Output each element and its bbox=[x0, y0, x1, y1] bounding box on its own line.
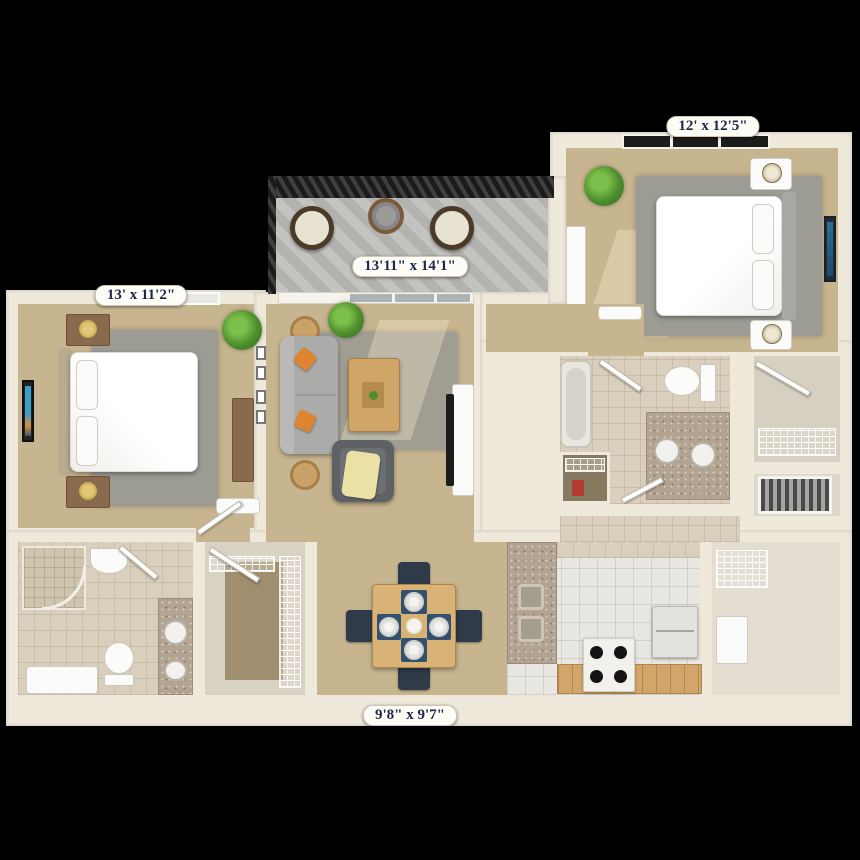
floor-plan-canvas: 12' x 12'5" 13' x 11'2" 13'11" x 14'1" 9… bbox=[0, 0, 860, 860]
bedroom2-dimension-label: 12' x 12'5" bbox=[666, 116, 759, 137]
stove-burner-1 bbox=[590, 646, 603, 659]
bedroom2-wall-art-canvas bbox=[827, 222, 833, 276]
living-dimension-label: 13'11" x 14'1" bbox=[352, 256, 468, 277]
balcony-chair-right bbox=[430, 206, 474, 250]
bedroom2-lamp-2 bbox=[762, 324, 782, 344]
balcony-railing-left bbox=[268, 176, 276, 294]
bathroom2-niche-shelf bbox=[565, 458, 605, 472]
dining-plate-bottom bbox=[404, 640, 424, 660]
bathroom2-niche-red-item bbox=[572, 480, 584, 496]
bathroom2-sink bbox=[654, 438, 680, 464]
balcony-table bbox=[368, 198, 404, 234]
bedroom2-plant bbox=[584, 166, 624, 206]
stove-burner-2 bbox=[614, 646, 627, 659]
bedroom2-lamp bbox=[762, 163, 782, 183]
dining-centerpiece bbox=[406, 618, 422, 634]
living-throw-blanket bbox=[341, 450, 381, 500]
dining-plate-right bbox=[429, 617, 449, 637]
bedroom2-window-mullion bbox=[670, 136, 673, 147]
bathroom1-sink bbox=[163, 620, 188, 645]
sliding-door-mullion-2 bbox=[434, 294, 437, 302]
louvered-door bbox=[758, 476, 832, 514]
living-side-table-2 bbox=[290, 460, 320, 490]
kitchen-sink-2 bbox=[518, 616, 544, 642]
hall-cabinet bbox=[598, 306, 642, 320]
living-wall-frame-3 bbox=[256, 390, 266, 404]
stove-burner-4 bbox=[614, 670, 627, 683]
living-wall-frame bbox=[256, 346, 266, 360]
kitchen-backsplash bbox=[557, 542, 700, 558]
tv-screen bbox=[446, 394, 454, 486]
bedroom1-desk bbox=[232, 398, 254, 482]
living-wall-frame-4 bbox=[256, 410, 266, 424]
bathroom2-sink-2 bbox=[690, 442, 716, 468]
balcony-chair-left bbox=[290, 206, 334, 250]
kitchen-fridge bbox=[652, 606, 698, 658]
pantry-shelf bbox=[716, 550, 768, 588]
closet1-shelving-side bbox=[279, 556, 301, 688]
kitchen-sink bbox=[518, 584, 544, 610]
bathroom1-bench bbox=[26, 666, 98, 694]
living-wall-frame-2 bbox=[256, 366, 266, 380]
hallway2-floor bbox=[560, 516, 740, 542]
bedroom1-pillow-2 bbox=[76, 416, 98, 466]
bathroom2-toilet-tank bbox=[700, 364, 716, 402]
bathroom1-sink-2 bbox=[164, 660, 187, 681]
bathroom1-toilet-tank bbox=[104, 674, 134, 686]
stove-burner-3 bbox=[590, 670, 603, 683]
living-sofa-seam bbox=[296, 394, 336, 396]
bedroom1-dimension-label: 13' x 11'2" bbox=[95, 285, 187, 306]
bedroom2-dresser bbox=[566, 226, 586, 310]
bedroom2-pillow bbox=[752, 204, 774, 254]
bathroom2-toilet-bowl bbox=[664, 366, 700, 396]
bedroom2-window-mullion-2 bbox=[718, 136, 721, 147]
bedroom1-pillow bbox=[76, 360, 98, 410]
dining-dimension-label: 9'8" x 9'7" bbox=[363, 705, 457, 726]
bathroom2-bathtub-basin bbox=[566, 368, 586, 440]
living-sofa-backrest bbox=[280, 336, 294, 454]
dining-chair-right bbox=[454, 610, 482, 642]
sliding-door-glass bbox=[350, 294, 470, 302]
dining-chair-left bbox=[346, 610, 374, 642]
bedroom1-lamp-2 bbox=[78, 481, 98, 501]
tv-console bbox=[452, 384, 474, 496]
bedroom1-plant bbox=[222, 310, 262, 350]
living-coffee-table-bowl bbox=[369, 391, 378, 400]
dining-plate-left bbox=[379, 617, 399, 637]
bedroom1-wall-art-canvas bbox=[25, 386, 31, 436]
bathroom1-toilet-bowl bbox=[104, 642, 134, 674]
sliding-door-mullion bbox=[392, 294, 395, 302]
kitchen-fridge-handle bbox=[656, 630, 694, 632]
living-plant bbox=[328, 302, 364, 338]
bedroom1-lamp bbox=[78, 319, 98, 339]
closet-right-shelving bbox=[758, 428, 836, 456]
bedroom2-headboard bbox=[782, 192, 796, 320]
dining-plate-top bbox=[404, 592, 424, 612]
kitchen-stove bbox=[583, 638, 635, 692]
balcony-railing bbox=[268, 176, 554, 198]
bedroom2-pillow-2 bbox=[752, 260, 774, 310]
pantry-appliance bbox=[716, 616, 748, 664]
